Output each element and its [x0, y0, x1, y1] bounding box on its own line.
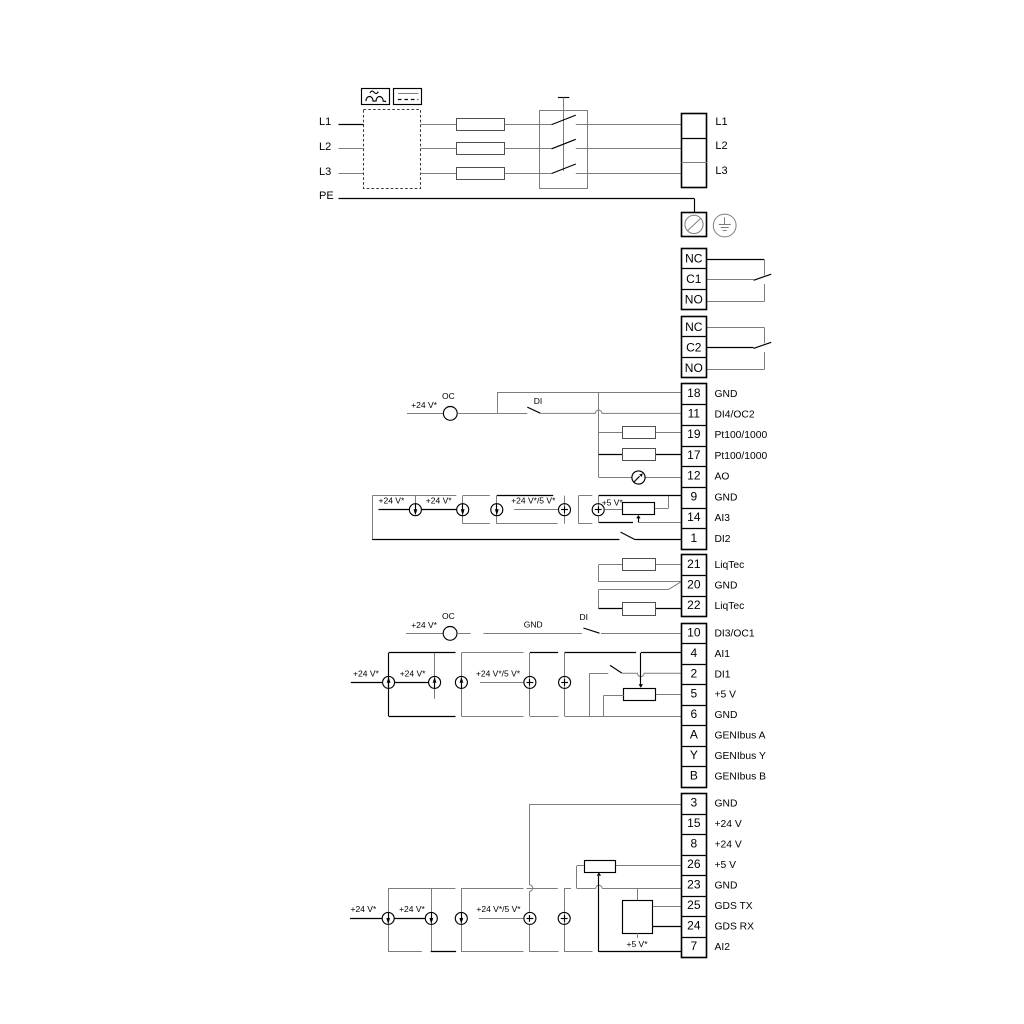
svg-text:1: 1	[691, 531, 698, 545]
svg-text:+24 V*/5 V*: +24 V*/5 V*	[476, 904, 521, 914]
svg-text:GND: GND	[715, 710, 738, 721]
svg-text:L3: L3	[715, 165, 727, 177]
svg-text:AI3: AI3	[715, 513, 731, 524]
svg-text:+24 V: +24 V	[715, 819, 742, 830]
svg-text:20: 20	[687, 577, 701, 591]
svg-text:7: 7	[691, 939, 698, 953]
svg-text:B: B	[690, 769, 698, 783]
svg-text:+24 V*/5 V*: +24 V*/5 V*	[511, 496, 556, 506]
svg-text:C1: C1	[686, 272, 702, 286]
svg-text:LiqTec: LiqTec	[715, 601, 745, 612]
svg-text:L2: L2	[715, 140, 727, 152]
svg-text:DI1: DI1	[715, 669, 731, 680]
svg-text:3: 3	[691, 796, 698, 810]
svg-text:DI: DI	[580, 612, 589, 622]
svg-text:DI3/OC1: DI3/OC1	[715, 628, 755, 639]
svg-text:GND: GND	[524, 619, 543, 629]
svg-text:+24 V*: +24 V*	[399, 904, 425, 914]
svg-text:L3: L3	[319, 166, 331, 178]
svg-text:12: 12	[687, 469, 701, 483]
svg-text:OC: OC	[442, 611, 455, 621]
svg-text:23: 23	[687, 878, 701, 892]
svg-text:26: 26	[687, 857, 701, 871]
svg-text:GENIbus Y: GENIbus Y	[715, 751, 766, 762]
svg-text:19: 19	[687, 427, 701, 441]
svg-text:AO: AO	[715, 472, 730, 483]
svg-text:L1: L1	[715, 116, 727, 128]
svg-text:+5 V: +5 V	[715, 690, 737, 701]
svg-text:GND: GND	[715, 799, 738, 810]
svg-text:GENIbus B: GENIbus B	[715, 772, 767, 783]
svg-text:AI1: AI1	[715, 649, 731, 660]
svg-text:NC: NC	[685, 320, 703, 334]
svg-text:14: 14	[687, 510, 701, 524]
svg-text:5: 5	[691, 687, 698, 701]
svg-text:25: 25	[687, 898, 701, 912]
svg-text:22: 22	[687, 598, 701, 612]
svg-text:15: 15	[687, 816, 701, 830]
svg-text:Pt100/1000: Pt100/1000	[715, 430, 768, 441]
svg-text:+24 V*: +24 V*	[400, 668, 426, 678]
svg-text:GDS TX: GDS TX	[715, 901, 753, 912]
svg-text:DI: DI	[534, 396, 543, 406]
svg-text:Pt100/1000: Pt100/1000	[715, 451, 768, 462]
svg-text:+5 V*: +5 V*	[602, 497, 624, 507]
svg-text:2: 2	[691, 666, 698, 680]
svg-text:11: 11	[688, 407, 701, 421]
svg-text:GND: GND	[715, 492, 738, 503]
svg-text:+5 V: +5 V	[715, 860, 737, 871]
svg-text:6: 6	[691, 707, 698, 721]
svg-text:+5 V*: +5 V*	[627, 939, 649, 949]
svg-text:OC: OC	[442, 391, 455, 401]
svg-text:GND: GND	[715, 881, 738, 892]
svg-text:GND: GND	[715, 389, 738, 400]
svg-text:17: 17	[687, 448, 701, 462]
svg-text:PE: PE	[319, 190, 334, 202]
svg-text:NC: NC	[685, 252, 703, 266]
svg-text:+24 V*: +24 V*	[351, 904, 377, 914]
svg-text:+24 V*: +24 V*	[411, 400, 437, 410]
svg-text:8: 8	[691, 837, 698, 851]
svg-text:LiqTec: LiqTec	[715, 560, 745, 571]
svg-text:+24 V*: +24 V*	[411, 620, 437, 630]
svg-text:24: 24	[687, 919, 701, 933]
svg-text:+24 V*/5 V*: +24 V*/5 V*	[476, 668, 521, 678]
svg-text:4: 4	[691, 646, 698, 660]
svg-text:DI2: DI2	[715, 534, 731, 545]
svg-text:L2: L2	[319, 141, 331, 153]
svg-text:L1: L1	[319, 116, 331, 128]
svg-text:GND: GND	[715, 580, 738, 591]
svg-text:21: 21	[687, 557, 701, 571]
svg-text:GDS RX: GDS RX	[715, 922, 755, 933]
svg-text:+24 V*: +24 V*	[353, 668, 379, 678]
svg-text:NO: NO	[685, 293, 703, 307]
svg-text:DI4/OC2: DI4/OC2	[715, 410, 755, 421]
svg-text:10: 10	[687, 625, 701, 639]
svg-text:A: A	[690, 728, 698, 742]
svg-text:NO: NO	[685, 361, 703, 375]
svg-text:9: 9	[691, 489, 698, 503]
svg-text:18: 18	[687, 386, 701, 400]
svg-text:+24 V: +24 V	[715, 840, 742, 851]
svg-text:Y: Y	[690, 748, 698, 762]
svg-text:+24 V*: +24 V*	[379, 496, 405, 506]
svg-text:+24 V*: +24 V*	[426, 496, 452, 506]
svg-text:AI2: AI2	[715, 942, 731, 953]
svg-text:GENIbus A: GENIbus A	[715, 731, 766, 742]
svg-text:C2: C2	[686, 340, 702, 354]
